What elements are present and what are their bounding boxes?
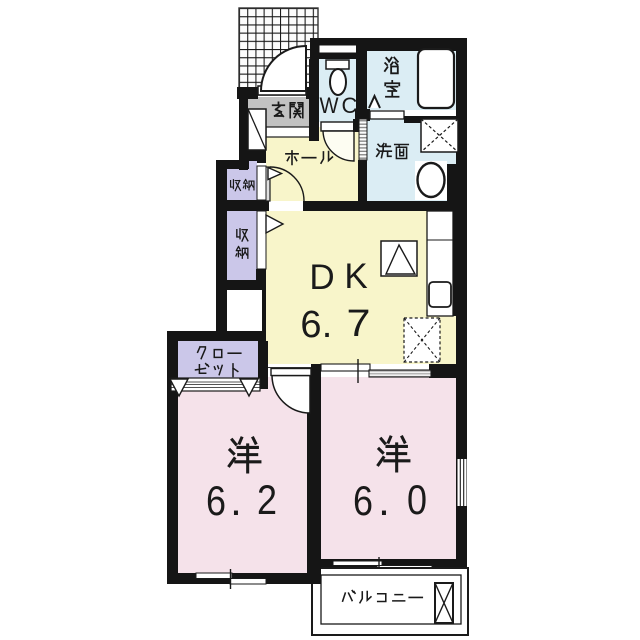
svg-text:W: W <box>320 93 339 118</box>
svg-text:6: 6 <box>353 477 373 524</box>
svg-text:.: . <box>322 304 333 346</box>
svg-text:D: D <box>309 258 334 297</box>
svg-text:C: C <box>342 93 358 118</box>
svg-text:.: . <box>378 477 390 524</box>
svg-text:7: 7 <box>347 303 371 345</box>
svg-text:0: 0 <box>407 476 427 523</box>
svg-text:.: . <box>230 477 242 524</box>
svg-text:6: 6 <box>300 304 321 346</box>
svg-text:K: K <box>344 257 367 296</box>
svg-text:6: 6 <box>206 477 226 524</box>
svg-text:2: 2 <box>257 476 277 523</box>
